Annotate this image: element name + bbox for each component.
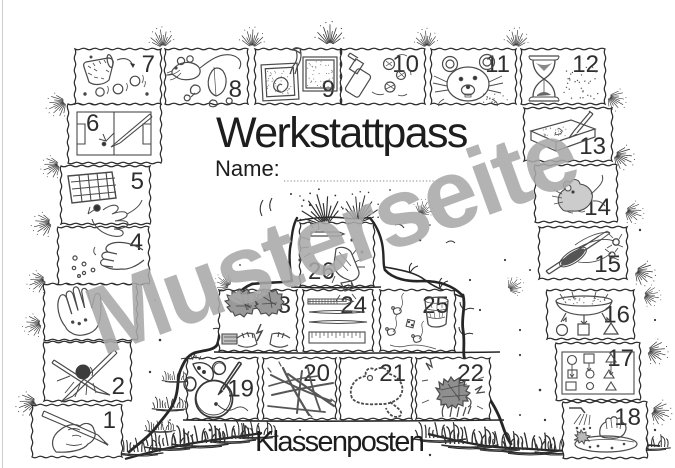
svg-text:18: 18 [614, 404, 641, 431]
svg-text:1: 1 [103, 407, 116, 434]
svg-text:Klassenposten: Klassenposten [255, 426, 424, 458]
svg-text:21: 21 [379, 360, 406, 387]
svg-text:Name:: Name: [215, 156, 280, 181]
svg-text:5: 5 [131, 168, 144, 195]
svg-text:15: 15 [594, 251, 621, 278]
svg-text:6: 6 [86, 110, 99, 137]
svg-text:20: 20 [303, 360, 330, 387]
svg-text:7: 7 [142, 51, 155, 78]
svg-text:12: 12 [572, 51, 599, 78]
svg-text:19: 19 [227, 376, 254, 403]
svg-text:2: 2 [112, 373, 125, 400]
svg-text:13: 13 [579, 133, 606, 160]
svg-text:16: 16 [603, 302, 630, 329]
